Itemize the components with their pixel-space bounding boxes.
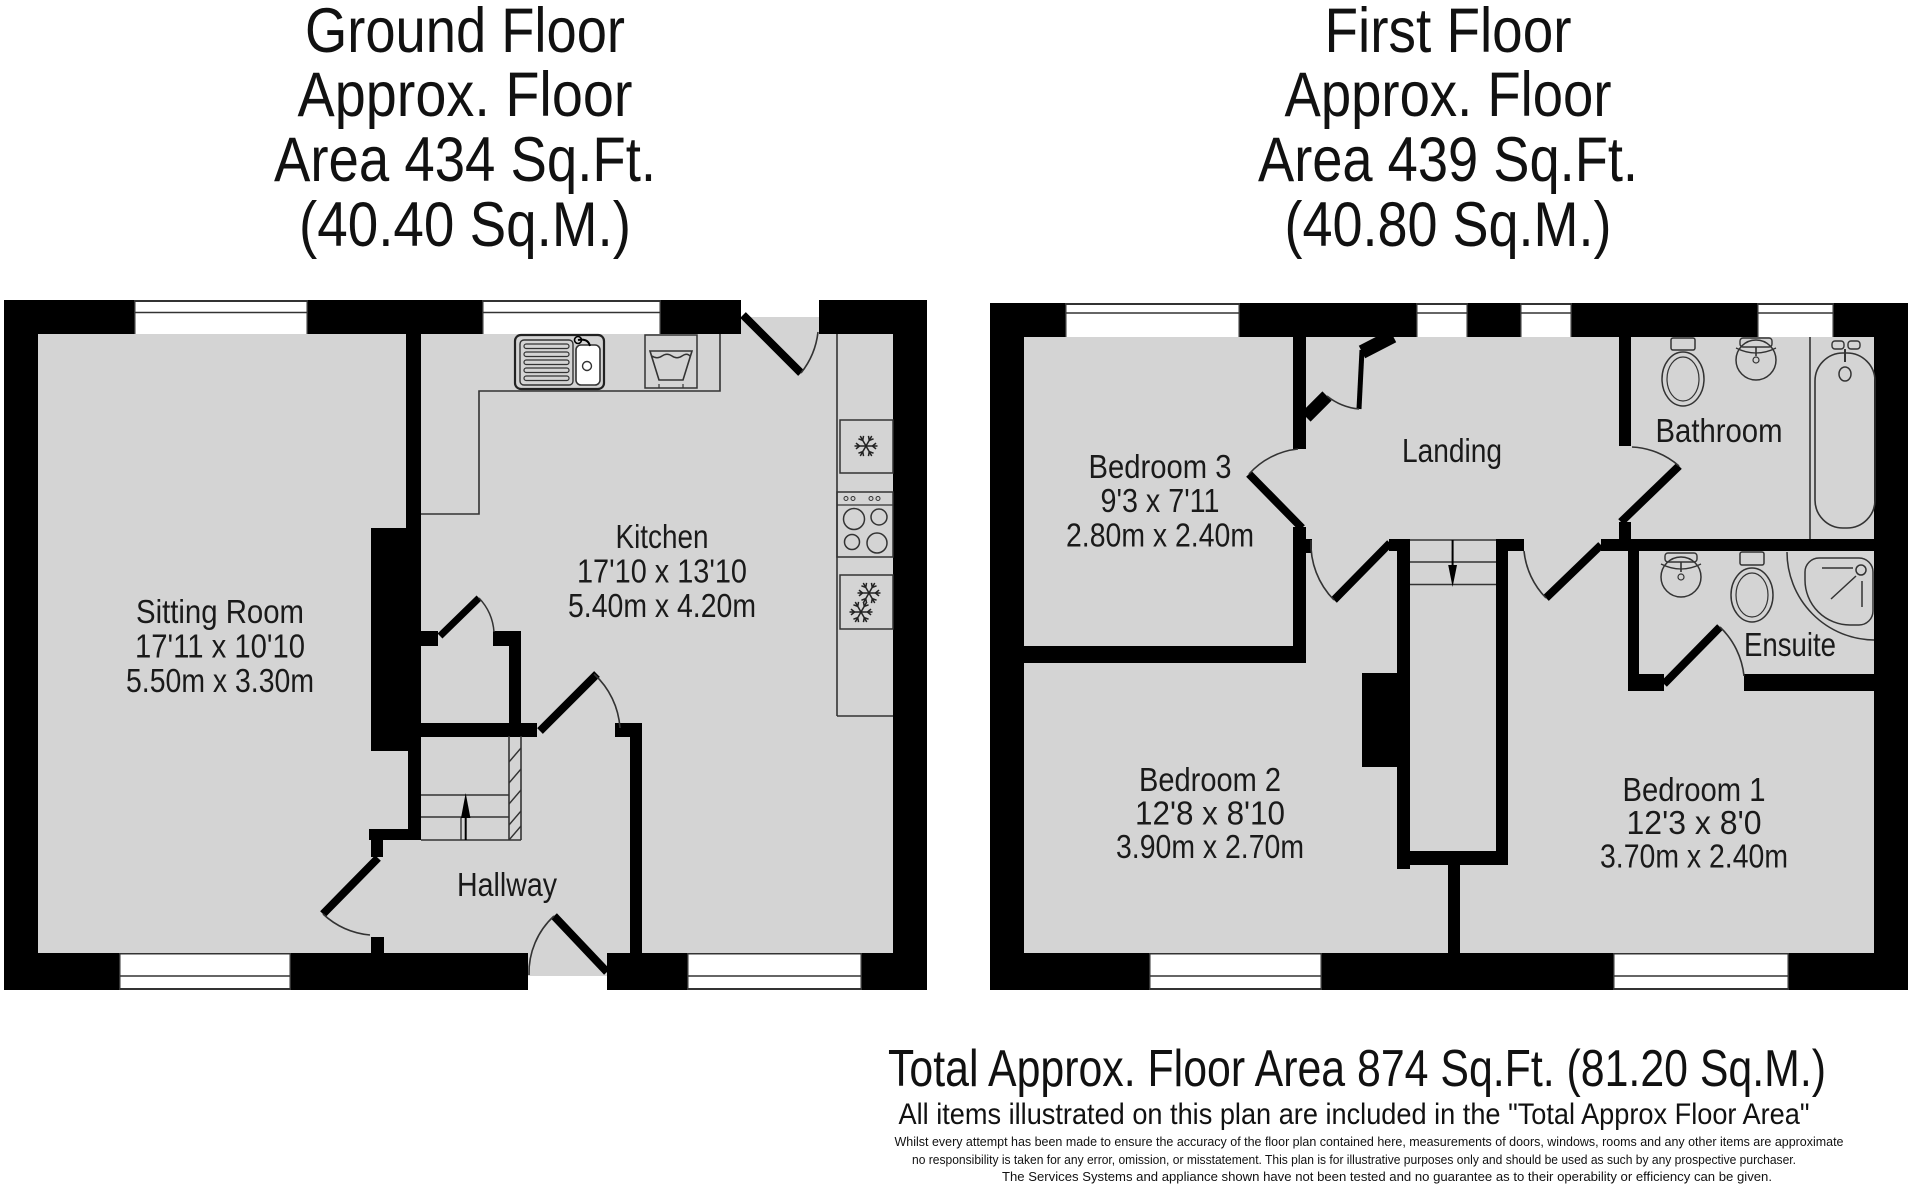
svg-text:The Services Systems and appli: The Services Systems and appliance shown… (1002, 1170, 1772, 1184)
svg-text:Bedroom 1: Bedroom 1 (1623, 771, 1766, 808)
svg-text:17'11 x 10'10: 17'11 x 10'10 (135, 628, 305, 665)
svg-text:Ground Floor: Ground Floor (305, 0, 625, 66)
svg-text:Sitting Room: Sitting Room (136, 593, 304, 630)
svg-text:Bedroom 3: Bedroom 3 (1089, 448, 1232, 485)
svg-text:Ensuite: Ensuite (1744, 626, 1836, 663)
svg-text:2.80m x 2.40m: 2.80m x 2.40m (1066, 517, 1254, 554)
svg-text:3.90m x 2.70m: 3.90m x 2.70m (1116, 828, 1304, 865)
svg-text:All items illustrated on this: All items illustrated on this plan are i… (899, 1098, 1810, 1131)
svg-text:12'3 x 8'0: 12'3 x 8'0 (1627, 804, 1762, 841)
svg-text:Bathroom: Bathroom (1656, 412, 1783, 449)
svg-text:Hallway: Hallway (457, 866, 557, 903)
svg-text:Area 434 Sq.Ft.: Area 434 Sq.Ft. (274, 125, 656, 195)
svg-text:5.50m x 3.30m: 5.50m x 3.30m (126, 662, 314, 699)
svg-text:Kitchen: Kitchen (616, 518, 709, 555)
svg-text:First Floor: First Floor (1325, 0, 1572, 66)
svg-text:5.40m x 4.20m: 5.40m x 4.20m (568, 587, 756, 624)
svg-text:(40.80 Sq.M.): (40.80 Sq.M.) (1285, 190, 1612, 260)
svg-text:Total Approx. Floor Area 874 S: Total Approx. Floor Area 874 Sq.Ft. (81.… (888, 1040, 1826, 1098)
svg-text:Area 439 Sq.Ft.: Area 439 Sq.Ft. (1258, 125, 1638, 195)
svg-text:3.70m x 2.40m: 3.70m x 2.40m (1600, 838, 1788, 875)
svg-text:Approx. Floor: Approx. Floor (1285, 60, 1612, 130)
svg-text:12'8 x 8'10: 12'8 x 8'10 (1135, 795, 1285, 832)
svg-text:Landing: Landing (1402, 432, 1502, 469)
svg-text:9'3 x 7'11: 9'3 x 7'11 (1101, 482, 1220, 519)
svg-text:Approx. Floor: Approx. Floor (298, 60, 633, 130)
svg-text:17'10 x 13'10: 17'10 x 13'10 (577, 553, 747, 590)
svg-text:no responsibility is taken for: no responsibility is taken for any error… (912, 1153, 1796, 1167)
svg-text:(40.40 Sq.M.): (40.40 Sq.M.) (299, 190, 631, 260)
svg-text:Bedroom 2: Bedroom 2 (1139, 761, 1281, 798)
svg-text:Whilst every attempt has been: Whilst every attempt has been made to en… (895, 1135, 1844, 1149)
